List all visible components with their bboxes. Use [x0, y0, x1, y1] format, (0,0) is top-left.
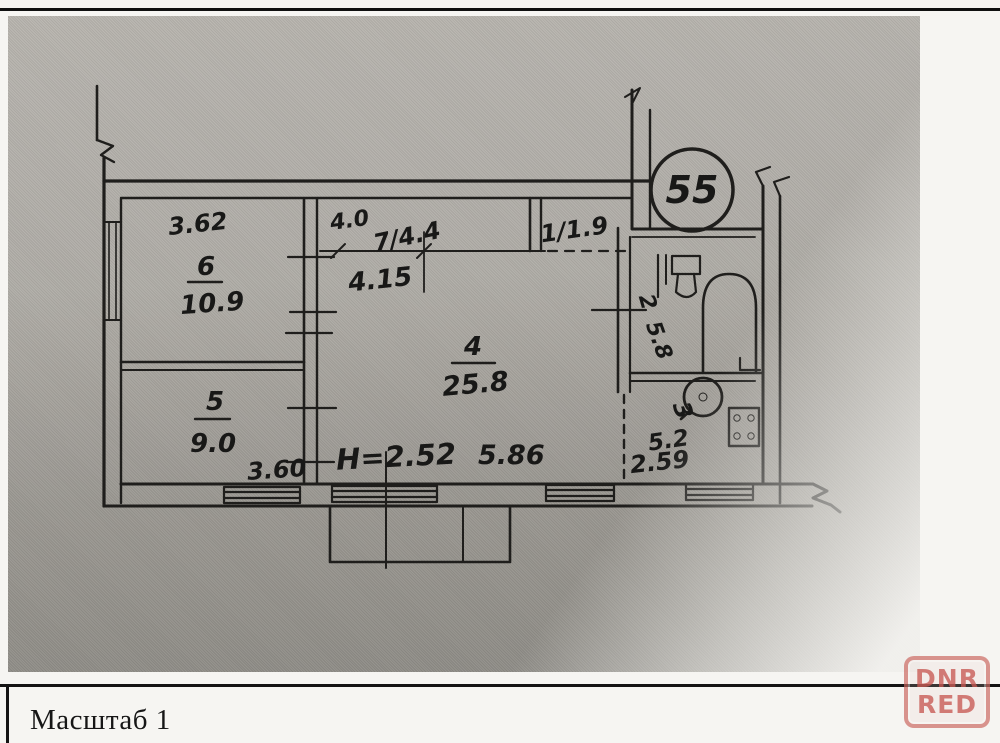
floor-plan-drawing: 55 3.62 6 10.9 4.0 7/4.4 4.15 1/1.9 4 25… [8, 16, 920, 672]
wall-break-right-2 [774, 177, 789, 196]
scanned-floor-plan-page: 55 3.62 6 10.9 4.0 7/4.4 4.15 1/1.9 4 25… [0, 0, 1000, 743]
room3-number-label: 3 [667, 398, 699, 423]
room1-label: 1/1.9 [539, 211, 610, 248]
room2-number-label: 2 [633, 291, 661, 313]
room4-number-label: 4 [463, 332, 482, 362]
room5-number-label: 5 [206, 387, 224, 417]
ceiling-height-label: H=2.52 [335, 437, 457, 477]
room6-number-label: 6 [197, 252, 215, 282]
scale-caption: Масштаб 1 [30, 704, 171, 737]
window-symbol-4 [686, 484, 753, 500]
room6-area-label: 10.9 [179, 287, 245, 321]
window-symbol-3 [546, 485, 614, 501]
apartment-number-label: 55 [666, 168, 719, 212]
watermark-line2: RED [917, 692, 977, 718]
window-symbol-2 [332, 486, 437, 502]
partition-tick-marks [286, 257, 336, 462]
window-symbol-left [104, 222, 121, 320]
page-bottom-rule [0, 684, 1000, 687]
page-top-rule [0, 8, 1000, 11]
wall-break-right-1 [756, 167, 770, 186]
room6-dim-label: 3.62 [167, 207, 229, 241]
room3-dim-label: 2.59 [629, 445, 691, 479]
page-left-rule [6, 687, 9, 743]
scan-photo-area: 55 3.62 6 10.9 4.0 7/4.4 4.15 1/1.9 4 25… [8, 16, 920, 672]
window-symbol-1 [224, 487, 300, 503]
stove-icon [729, 408, 759, 446]
room7-top-dim-label: 4.0 [328, 206, 371, 236]
room7-width-dim-label: 4.15 [346, 262, 414, 299]
room5-dim-label: 3.60 [246, 454, 307, 486]
apartment-number-badge: 55 [651, 149, 733, 231]
room2-area-label: 5.8 [640, 318, 677, 363]
room4-area-label: 25.8 [441, 366, 510, 403]
watermark-line1: DNR [915, 666, 979, 692]
room4-width-dim-label: 5.86 [478, 440, 545, 471]
bottom-wall-step-end [790, 484, 840, 512]
window-symbols-bottom [224, 484, 753, 503]
toilet-icon [672, 256, 700, 297]
room5-area-label: 9.0 [190, 429, 236, 459]
watermark-badge: DNR RED [904, 656, 990, 728]
bathtub-arch-icon [703, 274, 756, 372]
